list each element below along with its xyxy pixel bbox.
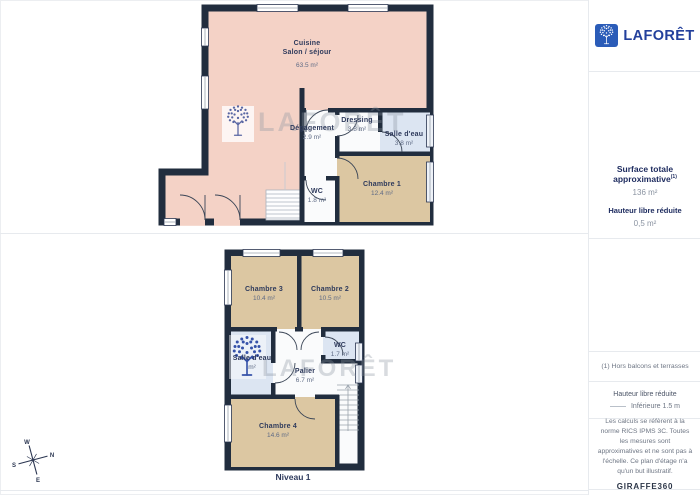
laforet-logo: LAFORÊT xyxy=(589,0,700,72)
room-area: 6.7 m² xyxy=(295,377,315,385)
room-name: Dressing xyxy=(341,116,373,125)
legend-panel: Hauteur libre réduite Inférieure 1.5 m xyxy=(589,382,700,419)
room-area: 12.4 m² xyxy=(363,190,401,198)
room-label-cuisine: Cuisine Salon / séjour 63.5 m² xyxy=(283,39,332,71)
room-name: WC xyxy=(331,341,349,350)
legend-row: Inférieure 1.5 m xyxy=(610,403,680,410)
room-area: 63.5 m² xyxy=(283,62,332,70)
surface-info-panel: Surface totale approximative(1) 136 m² H… xyxy=(589,72,700,239)
room-area: 10.5 m² xyxy=(311,295,349,303)
giraffe-360-text: 360 xyxy=(657,482,673,491)
footnote-text: (1) Hors balcons et terrasses xyxy=(601,363,688,370)
room-label-chambre-2: Chambre 2 10.5 m² xyxy=(311,285,349,304)
giraffe360-brand: GIRAFFE360 xyxy=(617,482,673,491)
floorplan-ground-svg xyxy=(0,0,588,233)
room-area: 3.8 m² xyxy=(385,140,424,148)
surface-value: 136 m² xyxy=(633,188,658,197)
compass-north-label: N xyxy=(50,453,54,459)
room-area: m² xyxy=(233,364,272,372)
floorplan-page: LAFORÊT Cuisine Salon / séjour 63.5 m² D… xyxy=(0,0,700,495)
reduced-height-title: Hauteur libre réduite xyxy=(608,206,681,215)
giraffe-text: GIRAFFE xyxy=(617,482,658,491)
room-name: Palier xyxy=(295,367,315,376)
sidebar: LAFORÊT Surface totale approximative(1) … xyxy=(588,0,700,495)
compass-icon: W N S E xyxy=(12,440,54,484)
room-name: Salle d'eau xyxy=(385,130,424,139)
disclaimer-text: Les calculs se réfèrent à la norme RICS … xyxy=(597,417,693,477)
room-area: 2.9 m² xyxy=(290,134,334,142)
room-label-chambre-3: Chambre 3 10.4 m² xyxy=(245,285,283,304)
room-name: Chambre 3 xyxy=(245,285,283,294)
legend-dash-icon xyxy=(610,406,626,407)
room-name: Salon / séjour xyxy=(283,48,332,57)
room-label-salle-deau: Salle d'eau 3.8 m² xyxy=(385,130,424,149)
room-label-chambre-4: Chambre 4 14.6 m² xyxy=(259,422,297,441)
legend-item-text: Inférieure 1.5 m xyxy=(631,403,680,410)
room-name: WC xyxy=(308,187,326,196)
reduced-height-value: 0,5 m² xyxy=(634,219,657,228)
disclaimer-panel: Les calculs se réfèrent à la norme RICS … xyxy=(589,419,700,490)
room-label-chambre-1: Chambre 1 12.4 m² xyxy=(363,180,401,199)
laforet-logo-icon xyxy=(595,24,618,47)
room-label-wc: WC 1.7 m² xyxy=(331,341,349,360)
surface-title: Surface totale approximative(1) xyxy=(589,164,700,184)
laforet-tree-watermark xyxy=(222,105,254,142)
level-label: Niveau 1 xyxy=(276,472,311,482)
floorplan-niveau-1: W N S E LAFORÊT Chambre 3 10.4 m² Chambr… xyxy=(0,233,588,490)
room-name: Chambre 4 xyxy=(259,422,297,431)
room-name: Cuisine xyxy=(283,39,332,48)
footnote-panel: (1) Hors balcons et terrasses xyxy=(589,352,700,382)
room-area: 3.8 m² xyxy=(341,126,373,134)
legend-title: Hauteur libre réduite xyxy=(613,391,676,398)
room-name: Chambre 1 xyxy=(363,180,401,189)
room-name: Chambre 2 xyxy=(311,285,349,294)
room-area: 1.8 m² xyxy=(308,197,326,205)
surface-title-text: Surface totale approximative xyxy=(613,164,673,184)
room-label-salle-deau: Salle d'eau m² xyxy=(233,354,272,373)
floorplan-niveau-1-svg: W N S E xyxy=(0,233,588,490)
surface-footnote-marker: (1) xyxy=(671,174,677,180)
compass-south-label: S xyxy=(12,463,16,469)
room-label-wc: WC 1.8 m² xyxy=(308,187,326,206)
room-name: Dégagement xyxy=(290,124,334,133)
empty-panel xyxy=(589,239,700,352)
room-label-degagement: Dégagement 2.9 m² xyxy=(290,124,334,143)
room-area: 10.4 m² xyxy=(245,295,283,303)
plans-area: LAFORÊT Cuisine Salon / séjour 63.5 m² D… xyxy=(0,0,588,491)
compass-east-label: E xyxy=(36,478,40,484)
room-label-dressing: Dressing 3.8 m² xyxy=(341,116,373,135)
floorplan-ground: LAFORÊT Cuisine Salon / séjour 63.5 m² D… xyxy=(0,0,588,234)
room-label-palier: Palier 6.7 m² xyxy=(295,367,315,386)
compass-west-label: W xyxy=(24,440,30,446)
room-area: 1.7 m² xyxy=(331,351,349,359)
room-name: Salle d'eau xyxy=(233,354,272,363)
laforet-logo-text: LAFORÊT xyxy=(623,28,694,44)
room-area: 14.6 m² xyxy=(259,432,297,440)
